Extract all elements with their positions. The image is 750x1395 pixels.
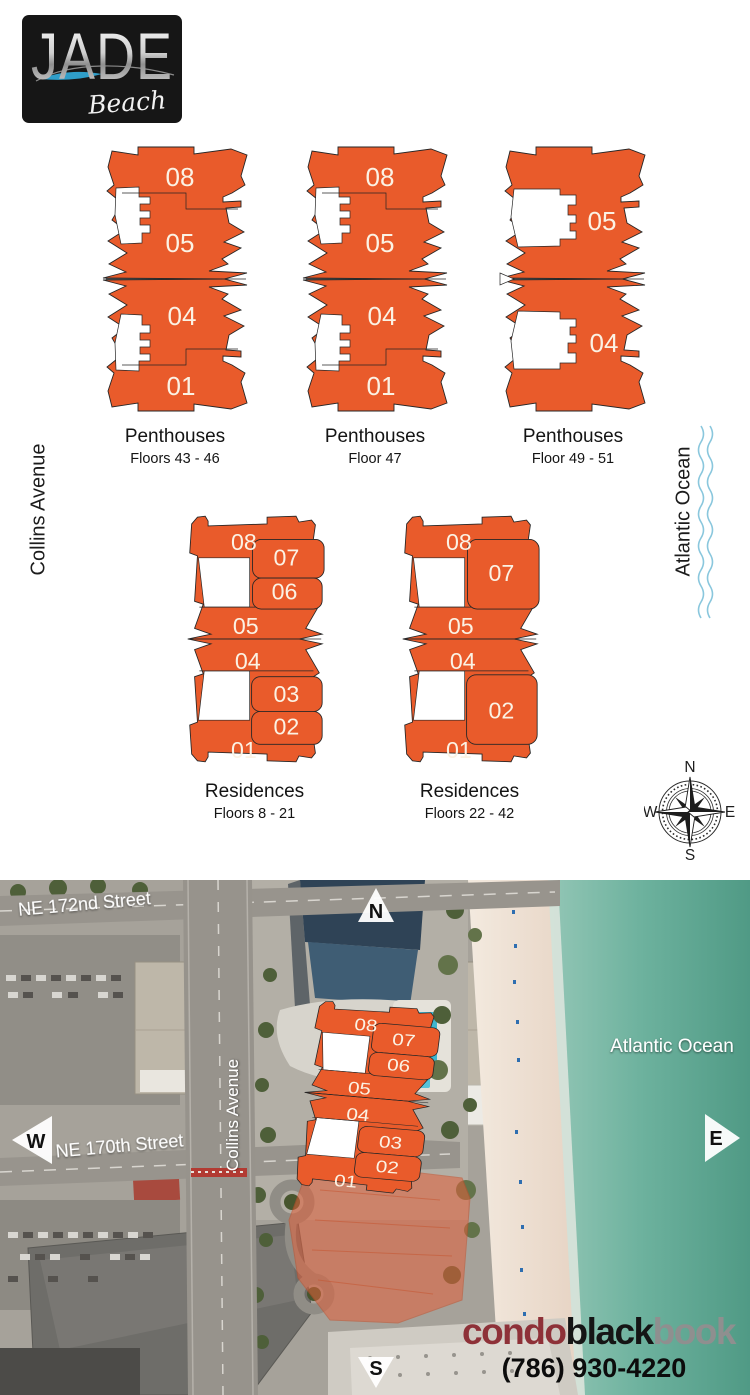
unit-04[interactable]: 04: [450, 648, 476, 674]
map-unit-03[interactable]: 03: [378, 1132, 403, 1153]
unit-05[interactable]: 05: [366, 228, 395, 258]
unit-08[interactable]: 08: [231, 529, 257, 555]
plate-subtitle: Floors 8 - 21: [182, 806, 327, 822]
plate-title: Penthouses: [498, 426, 648, 448]
floorplate-penthouses-49-51: 05 04 Penthouses Floor 49 - 51: [498, 143, 648, 467]
map-label-atlantic-ocean: Atlantic Ocean: [610, 1036, 734, 1057]
plate-title: Residences: [397, 781, 542, 803]
floorplate-residences-8-21: 08 07 06 05 04 03 02 01 Residences Floor…: [182, 508, 327, 822]
unit-06[interactable]: 06: [272, 578, 298, 604]
unit-08[interactable]: 08: [166, 162, 195, 192]
map-unit-05[interactable]: 05: [347, 1078, 372, 1099]
unit-01[interactable]: 01: [446, 737, 472, 763]
unit-02[interactable]: 02: [274, 714, 300, 740]
svg-text:N: N: [369, 901, 383, 923]
page: JADE Beach Collins Avenue Atlantic Ocean: [0, 0, 750, 1395]
unit-05[interactable]: 05: [448, 613, 474, 639]
map-unit-06[interactable]: 06: [386, 1055, 411, 1076]
brand-condo: condo: [462, 1311, 566, 1352]
map-unit-01[interactable]: 01: [333, 1171, 358, 1192]
satellite-map[interactable]: 08 07 06 05 04 03 02 01 NE 172nd Street …: [0, 880, 750, 1395]
floorplate-svg[interactable]: 08 07 05 04 02 01: [397, 508, 542, 770]
map-unit-08[interactable]: 08: [353, 1015, 378, 1036]
plate-subtitle: Floor 47: [300, 451, 450, 467]
svg-text:W: W: [27, 1131, 46, 1153]
unit-04[interactable]: 04: [368, 301, 397, 331]
brand-black: black: [565, 1311, 654, 1352]
plate-subtitle: Floors 43 - 46: [100, 451, 250, 467]
unit-07[interactable]: 07: [274, 545, 300, 571]
unit-01[interactable]: 01: [367, 371, 396, 401]
unit-01[interactable]: 01: [231, 737, 257, 763]
unit-01[interactable]: 01: [167, 371, 196, 401]
logo-title: JADE: [22, 19, 182, 95]
ocean-waves-icon: [694, 424, 720, 624]
unit-05[interactable]: 05: [588, 206, 617, 236]
unit-08[interactable]: 08: [446, 529, 472, 555]
unit-05[interactable]: 05: [233, 613, 259, 639]
unit-04[interactable]: 04: [235, 648, 261, 674]
brand-book: book: [653, 1311, 737, 1352]
plate-title: Residences: [182, 781, 327, 803]
unit-07[interactable]: 07: [489, 560, 515, 586]
phone-number[interactable]: (786) 930-4220: [502, 1353, 687, 1383]
map-unit-02[interactable]: 02: [375, 1157, 400, 1178]
unit-05[interactable]: 05: [166, 228, 195, 258]
floorplate-penthouses-43-46: 08 05 04 01 Penthouses Floors 43 - 46: [100, 143, 250, 467]
map-unit-04[interactable]: 04: [345, 1104, 370, 1125]
floorplate-svg[interactable]: 08 05 04 01: [100, 143, 250, 415]
floorplate-svg[interactable]: 08 05 04 01: [300, 143, 450, 415]
plate-subtitle: Floors 22 - 42: [397, 806, 542, 822]
svg-text:S: S: [369, 1358, 382, 1380]
unit-04[interactable]: 04: [590, 328, 619, 358]
condoblackbook-logo[interactable]: condoblackbook: [462, 1311, 737, 1352]
unit-04[interactable]: 04: [168, 301, 197, 331]
floorplate-svg[interactable]: 08 07 06 05 04 03 02 01: [182, 508, 327, 770]
compass-w: W: [644, 804, 658, 821]
compass-s: S: [685, 847, 695, 862]
unit-03[interactable]: 03: [274, 681, 300, 707]
plate-subtitle: Floor 49 - 51: [498, 451, 648, 467]
compass-e: E: [725, 804, 735, 821]
floorplate-penthouses-47: 08 05 04 01 Penthouses Floor 47: [300, 143, 450, 467]
unit-02[interactable]: 02: [489, 697, 515, 723]
jade-beach-logo[interactable]: JADE Beach: [22, 15, 182, 123]
unit-08[interactable]: 08: [366, 162, 395, 192]
collins-avenue-label: Collins Avenue: [28, 425, 51, 595]
atlantic-ocean-label: Atlantic Ocean: [673, 427, 696, 597]
plate-title: Penthouses: [300, 426, 450, 448]
compass-n: N: [684, 760, 695, 776]
logo-subtitle: Beach: [87, 85, 167, 119]
plate-title: Penthouses: [100, 426, 250, 448]
map-unit-07[interactable]: 07: [391, 1030, 416, 1051]
floorplate-residences-22-42: 08 07 05 04 02 01 Residences Floors 22 -…: [397, 508, 542, 822]
map-label-collins-avenue: Collins Avenue: [223, 1059, 242, 1171]
floorplate-svg[interactable]: 05 04: [498, 143, 648, 415]
svg-text:E: E: [709, 1128, 722, 1150]
compass-rose-icon: N S W E: [644, 760, 736, 862]
